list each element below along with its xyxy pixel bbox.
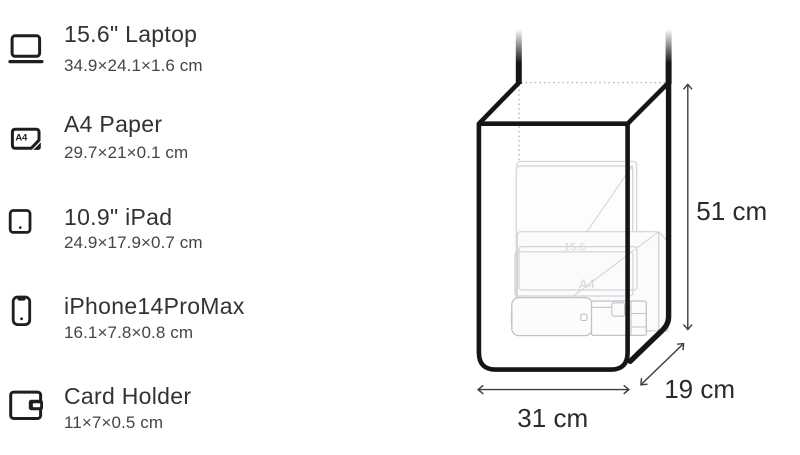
svg-text:A4: A4 (579, 277, 595, 292)
